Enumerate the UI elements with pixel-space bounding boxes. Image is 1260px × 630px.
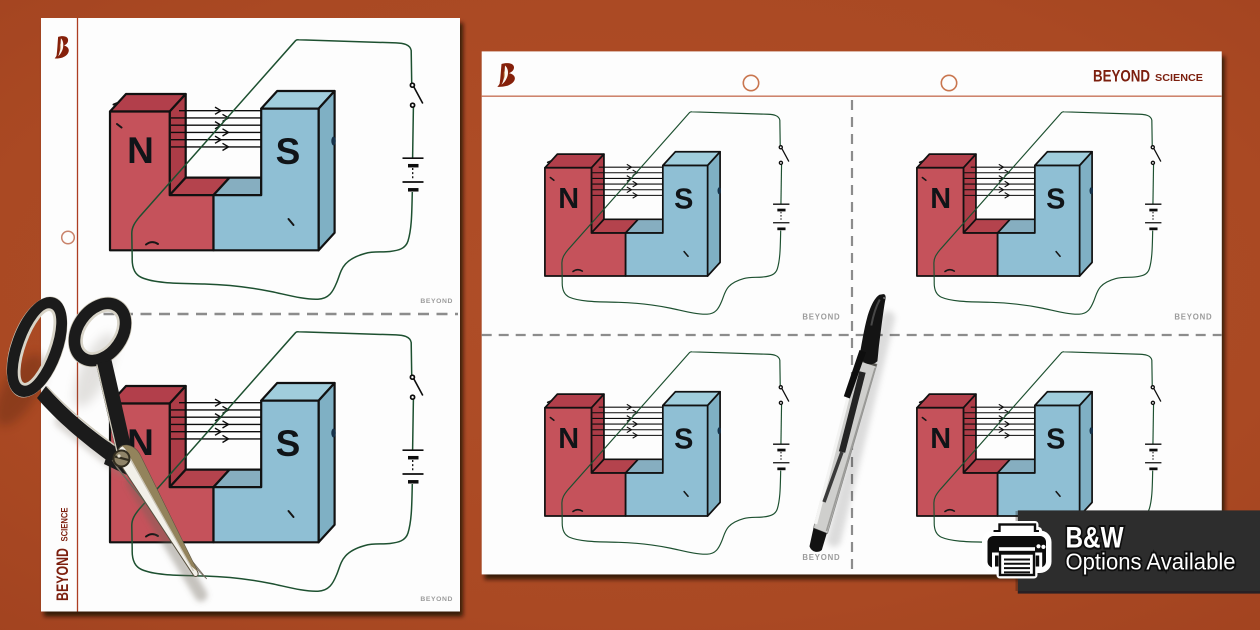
svg-text:BEYOND: BEYOND: [1093, 68, 1150, 86]
svg-text:BEYOND: BEYOND: [802, 553, 840, 562]
svg-text:SCIENCE: SCIENCE: [1155, 72, 1203, 84]
svg-text:BEYOND: BEYOND: [1174, 313, 1212, 322]
svg-text:Options Available: Options Available: [1066, 549, 1236, 575]
svg-text:BEYOND: BEYOND: [420, 298, 453, 305]
svg-text:BEYOND: BEYOND: [54, 548, 72, 601]
svg-text:BEYOND: BEYOND: [802, 313, 840, 322]
svg-text:SCIENCE: SCIENCE: [59, 508, 70, 542]
svg-text:BEYOND: BEYOND: [420, 596, 453, 603]
